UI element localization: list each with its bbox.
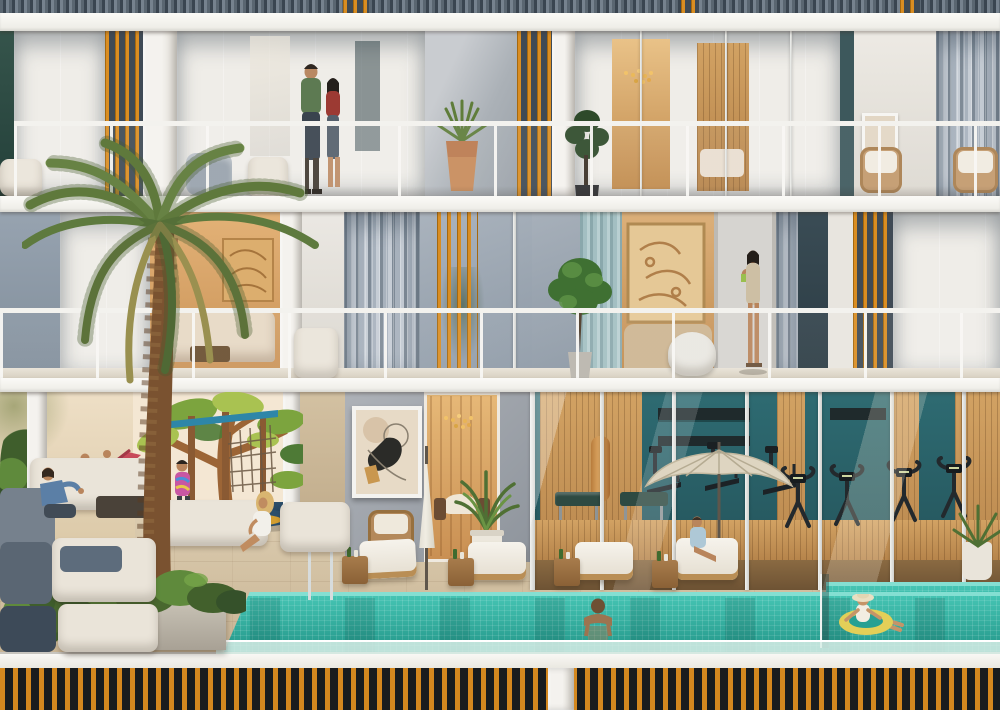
lobby-chair [434, 498, 446, 520]
man-swimming [578, 596, 618, 642]
upper-floor-strip [0, 0, 1000, 13]
floor-slab [0, 13, 1000, 31]
upper-louver-accent [900, 0, 920, 13]
gray-armchair-foreground [0, 542, 52, 604]
drink-table [554, 558, 580, 586]
gym-shelf [830, 408, 886, 420]
drink-table [448, 558, 474, 586]
armchair-cushion-navy [60, 546, 122, 572]
orange-slat-fence [0, 668, 1000, 710]
building-cross-section-render [0, 0, 1000, 710]
glass-mullion [818, 392, 822, 590]
umbrella-pole [425, 548, 428, 590]
elliptical-machine [783, 458, 970, 526]
sun-lounger [575, 542, 633, 580]
abstract-wall-art [352, 406, 422, 498]
rattan-chair-cushion [374, 514, 408, 534]
umbrella-finial [425, 446, 428, 464]
potted-plant-leaves [948, 496, 1000, 548]
glass-mullion [890, 392, 894, 590]
girl-on-float [836, 594, 908, 638]
drink-table [652, 560, 678, 588]
abstract-art-shapes [356, 410, 418, 494]
gray-sofa-foreground [0, 606, 56, 652]
foreground-armchair [58, 604, 158, 652]
lobby-chandelier [444, 416, 448, 420]
drink-table [342, 556, 368, 584]
glass-mullion [530, 392, 535, 590]
sun-lounger [468, 542, 526, 580]
fence-pillar [548, 668, 574, 710]
workout-bench [555, 492, 603, 506]
upper-louver-accent [343, 0, 369, 13]
woman-on-lounger [684, 514, 720, 572]
pool-glass-divider [820, 574, 829, 648]
upper-louver-accent [681, 0, 699, 13]
chandelier [624, 71, 628, 75]
